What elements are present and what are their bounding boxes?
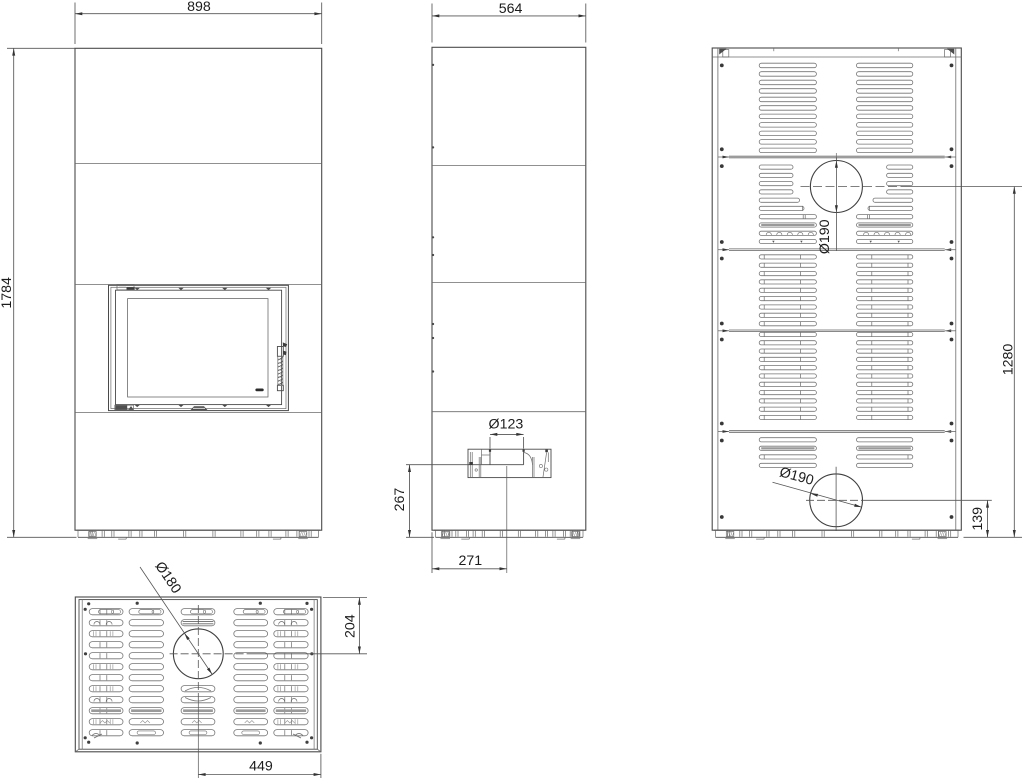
svg-text:564: 564 <box>499 1 523 17</box>
svg-text:1280: 1280 <box>1000 344 1016 376</box>
svg-text:Ø123: Ø123 <box>489 416 524 432</box>
svg-text:Ø190: Ø190 <box>817 219 833 254</box>
svg-text:271: 271 <box>458 553 482 569</box>
svg-text:898: 898 <box>187 0 211 15</box>
svg-text:449: 449 <box>249 758 273 774</box>
svg-text:267: 267 <box>392 488 408 512</box>
svg-text:1784: 1784 <box>0 277 15 309</box>
svg-text:204: 204 <box>342 614 358 638</box>
svg-text:139: 139 <box>970 507 986 531</box>
